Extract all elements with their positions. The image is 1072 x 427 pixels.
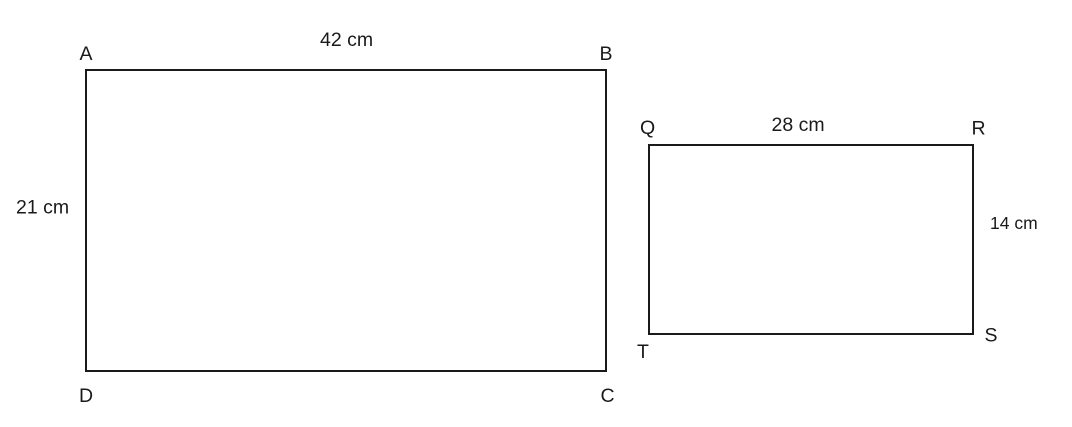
svg-text:A: A	[80, 43, 93, 65]
svg-text:14 cm: 14 cm	[990, 213, 1038, 233]
svg-text:42 cm: 42 cm	[320, 29, 373, 51]
svg-text:21 cm: 21 cm	[16, 197, 69, 219]
svg-text:R: R	[972, 118, 986, 140]
svg-text:B: B	[600, 43, 613, 65]
svg-text:28 cm: 28 cm	[772, 114, 825, 136]
svg-text:Q: Q	[640, 117, 655, 139]
svg-text:D: D	[79, 385, 93, 407]
svg-text:T: T	[637, 341, 649, 363]
svg-text:S: S	[985, 325, 998, 347]
svg-text:C: C	[601, 385, 615, 407]
